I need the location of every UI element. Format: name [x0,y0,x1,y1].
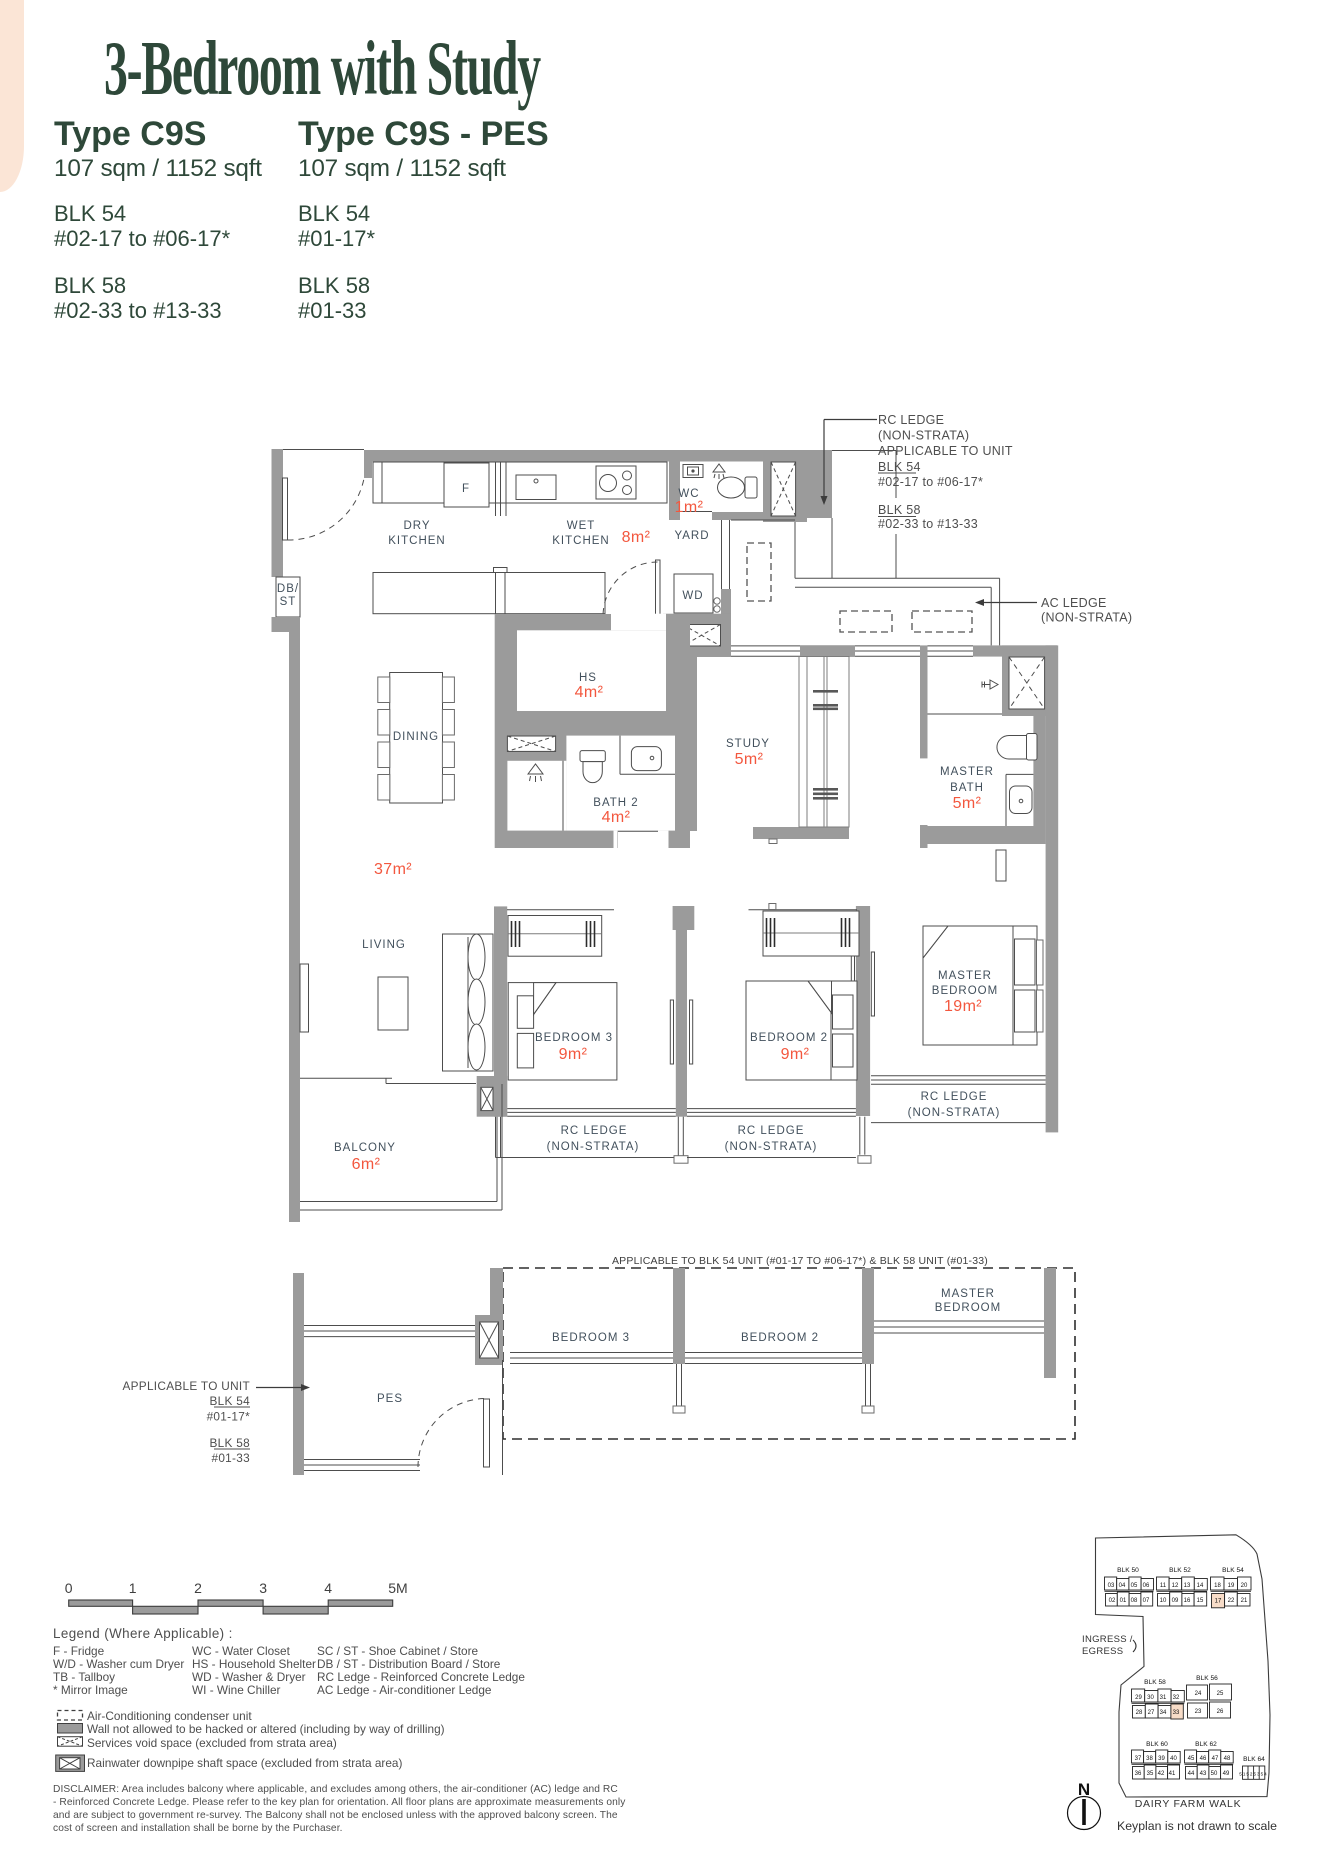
svg-text:51525354: 51525354 [1239,1772,1267,1777]
svg-text:#02-17 to #06-17*: #02-17 to #06-17* [878,475,983,489]
svg-text:BLK 58: BLK 58 [878,503,921,517]
svg-text:01: 01 [1120,1598,1127,1604]
svg-text:BEDROOM 2: BEDROOM 2 [741,1332,819,1344]
svg-text:03: 03 [1108,1583,1115,1589]
svg-text:13: 13 [1184,1583,1191,1589]
svg-text:02: 02 [1109,1598,1116,1604]
svg-text:20: 20 [1241,1583,1248,1589]
svg-text:6m²: 6m² [352,1156,381,1173]
svg-text:11: 11 [1160,1583,1167,1589]
svg-text:DRY: DRY [403,520,430,532]
svg-text:41: 41 [1169,1771,1176,1777]
svg-text:DINING: DINING [393,731,439,743]
svg-text:47: 47 [1212,1756,1219,1762]
svg-text:32: 32 [1173,1695,1180,1701]
svg-text:MASTER: MASTER [938,970,992,982]
svg-text:29: 29 [1135,1695,1142,1701]
svg-text:ST: ST [280,596,297,608]
svg-text:8m²: 8m² [622,529,651,546]
svg-text:33: 33 [1173,1710,1180,1716]
svg-text:BLK 62: BLK 62 [1195,1741,1217,1748]
svg-text:1: 1 [129,1580,137,1596]
svg-text:BLK 56: BLK 56 [1196,1675,1218,1682]
svg-text:LIVING: LIVING [362,939,406,951]
svg-text:BLK 58: BLK 58 [1144,1679,1166,1686]
svg-text:25: 25 [1217,1691,1224,1697]
svg-text:Keyplan is not drawn to scale: Keyplan is not drawn to scale [1117,1819,1277,1833]
svg-text:BLK 54: BLK 54 [1222,1567,1244,1574]
svg-text:46: 46 [1200,1756,1207,1762]
svg-text:BATH 2: BATH 2 [593,797,638,809]
svg-text:MASTER: MASTER [940,766,994,778]
svg-text:(NON-STRATA): (NON-STRATA) [725,1141,818,1153]
svg-text:37m²: 37m² [374,861,412,878]
svg-text:43: 43 [1200,1771,1207,1777]
svg-text:RC LEDGE: RC LEDGE [878,413,944,427]
svg-text:BLK 52: BLK 52 [1169,1567,1191,1574]
svg-text:YARD: YARD [674,530,709,542]
svg-text:APPLICABLE TO BLK 54 UNIT (#01: APPLICABLE TO BLK 54 UNIT (#01-17 TO #06… [612,1255,988,1267]
svg-text:BEDROOM 3: BEDROOM 3 [535,1032,613,1044]
svg-text:14: 14 [1197,1583,1204,1589]
svg-text:EGRESS: EGRESS [1082,1646,1123,1657]
svg-text:15: 15 [1197,1598,1204,1604]
svg-text:(NON-STRATA): (NON-STRATA) [547,1141,640,1153]
svg-text:08: 08 [1131,1598,1138,1604]
svg-text:06: 06 [1143,1583,1150,1589]
svg-text:APPLICABLE TO UNIT: APPLICABLE TO UNIT [122,1379,250,1393]
svg-text:KITCHEN: KITCHEN [552,535,609,547]
svg-text:#01-33: #01-33 [211,1451,250,1465]
svg-text:DB/: DB/ [277,583,299,595]
svg-text:28: 28 [1136,1710,1143,1716]
svg-text:48: 48 [1224,1756,1231,1762]
svg-text:2: 2 [194,1580,202,1596]
svg-text:12: 12 [1172,1583,1179,1589]
svg-text:BATH: BATH [950,782,984,794]
svg-text:4: 4 [324,1580,332,1596]
svg-text:31: 31 [1160,1695,1167,1701]
svg-text:BLK 64: BLK 64 [1243,1756,1265,1763]
svg-text:24: 24 [1195,1691,1202,1697]
svg-text:44: 44 [1188,1771,1195,1777]
svg-text:5M: 5M [388,1580,407,1596]
svg-text:BLK 60: BLK 60 [1146,1741,1168,1748]
svg-text:BEDROOM: BEDROOM [932,985,998,997]
svg-text:F: F [462,483,470,495]
svg-text:30: 30 [1147,1695,1154,1701]
svg-text:9m²: 9m² [559,1046,588,1063]
svg-text:17: 17 [1215,1599,1222,1605]
svg-text:0: 0 [65,1580,73,1596]
svg-text:34: 34 [1160,1710,1167,1716]
svg-text:22: 22 [1228,1598,1235,1604]
svg-text:39: 39 [1158,1756,1165,1762]
svg-text:MASTER: MASTER [941,1288,995,1300]
svg-text:36: 36 [1135,1771,1142,1777]
svg-text:BLK 54: BLK 54 [878,460,921,474]
svg-text:37: 37 [1135,1756,1142,1762]
svg-text:PES: PES [377,1393,403,1405]
svg-text:26: 26 [1217,1709,1224,1715]
svg-text:23: 23 [1195,1709,1202,1715]
svg-text:19: 19 [1228,1583,1235,1589]
svg-text:21: 21 [1241,1598,1248,1604]
svg-text:04: 04 [1119,1583,1126,1589]
svg-text:(NON-STRATA): (NON-STRATA) [908,1107,1001,1119]
svg-text:09: 09 [1172,1598,1179,1604]
svg-text:(NON-STRATA): (NON-STRATA) [878,429,969,443]
svg-text:#02-33 to #13-33: #02-33 to #13-33 [878,517,978,531]
svg-text:BLK 58: BLK 58 [210,1436,251,1450]
svg-text:RC LEDGE: RC LEDGE [921,1091,988,1103]
svg-text:42: 42 [1158,1771,1165,1777]
svg-text:1m²: 1m² [675,499,704,516]
svg-text:RC LEDGE: RC LEDGE [738,1125,805,1137]
svg-text:#01-17*: #01-17* [207,1410,251,1424]
svg-text:APPLICABLE TO UNIT: APPLICABLE TO UNIT [878,444,1013,458]
svg-text:35: 35 [1147,1771,1154,1777]
svg-text:19m²: 19m² [944,998,982,1015]
svg-text:BEDROOM 3: BEDROOM 3 [552,1332,630,1344]
svg-text:(NON-STRATA): (NON-STRATA) [1041,611,1132,625]
svg-text:4m²: 4m² [602,809,631,826]
svg-text:4m²: 4m² [575,684,604,701]
svg-text:BLK 54: BLK 54 [210,1394,251,1408]
svg-text:AC LEDGE: AC LEDGE [1041,596,1107,610]
svg-text:STUDY: STUDY [726,738,770,750]
svg-text:HS: HS [579,672,597,684]
svg-text:KITCHEN: KITCHEN [388,535,445,547]
svg-text:3: 3 [259,1580,267,1596]
svg-text:BALCONY: BALCONY [334,1142,396,1154]
svg-text:BLK 50: BLK 50 [1117,1567,1139,1574]
svg-text:45: 45 [1188,1756,1195,1762]
svg-text:27: 27 [1148,1710,1155,1716]
svg-text:9m²: 9m² [781,1046,810,1063]
svg-text:40: 40 [1170,1756,1177,1762]
svg-text:BEDROOM: BEDROOM [935,1302,1001,1314]
svg-text:5m²: 5m² [735,751,764,768]
svg-text:50: 50 [1211,1771,1218,1777]
svg-text:RC LEDGE: RC LEDGE [561,1125,628,1137]
svg-text:DAIRY FARM WALK: DAIRY FARM WALK [1135,1798,1242,1810]
svg-text:07: 07 [1143,1598,1150,1604]
svg-text:BEDROOM 2: BEDROOM 2 [750,1032,828,1044]
svg-text:WD: WD [682,590,703,602]
svg-text:10: 10 [1160,1598,1167,1604]
svg-text:INGRESS /: INGRESS / [1082,1634,1133,1645]
svg-text:WET: WET [567,520,596,532]
svg-text:18: 18 [1214,1583,1221,1589]
svg-text:5m²: 5m² [953,795,982,812]
svg-text:38: 38 [1146,1756,1153,1762]
svg-text:49: 49 [1223,1771,1230,1777]
svg-text:16: 16 [1184,1598,1191,1604]
svg-text:05: 05 [1131,1583,1138,1589]
